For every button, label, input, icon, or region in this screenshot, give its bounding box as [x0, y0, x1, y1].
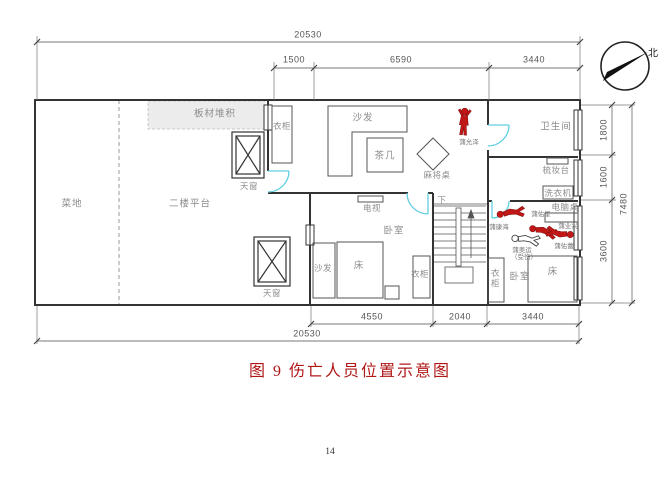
- dim-bot-seg-3440: 3440: [522, 313, 544, 322]
- dim-bottom-total: 20530: [293, 330, 321, 339]
- label-dressing-table: 梳妆台: [542, 166, 569, 175]
- dim-right-seg-1600: 1600: [600, 166, 609, 188]
- tv-outline: [358, 196, 383, 202]
- label-board-stack: 板材堆积: [194, 109, 236, 119]
- door-bathroom: [488, 125, 509, 146]
- label-sofa-living: 沙发: [352, 113, 373, 123]
- label-skylight-bottom: 天窗: [263, 289, 281, 298]
- page-number: 14: [325, 447, 335, 457]
- casualty-name-4: 蒲业兴: [558, 224, 578, 231]
- casualty-figure-injured: [511, 233, 540, 246]
- skylight-bottom-symbol: [254, 237, 290, 286]
- north-compass: [601, 42, 649, 90]
- dim-bot-seg-4550: 4550: [361, 313, 383, 322]
- skylight-top-symbol: [232, 132, 264, 178]
- door-bedroom-mid: [407, 193, 428, 214]
- casualty-status-6: （受伤）: [511, 255, 537, 262]
- staircase: [434, 206, 486, 283]
- dim-right-total: 7480: [620, 193, 629, 215]
- dim-right-seg-1800: 1800: [600, 119, 609, 141]
- label-bed-right: 床: [548, 267, 559, 277]
- casualty-figure-lying-1: [496, 206, 525, 220]
- compass-needle: [603, 52, 648, 81]
- dim-top-seg-3440: 3440: [523, 56, 545, 65]
- casualty-name-5: 蒲佑蕾: [554, 244, 574, 251]
- label-bathroom: 卫生间: [540, 122, 572, 132]
- mahjong-table-outline: [417, 138, 449, 170]
- floor-plan-drawing: [0, 0, 659, 478]
- label-washing-machine: 洗衣机: [544, 189, 571, 198]
- label-wardrobe-right: 衣柜: [491, 269, 500, 290]
- stair-landing: [445, 267, 473, 283]
- casualty-name-3: 蒲康海: [489, 225, 509, 232]
- dim-right-seg-3600: 3600: [600, 240, 609, 262]
- dim-top-total: 20530: [294, 31, 322, 40]
- label-platform: 二楼平台: [169, 199, 211, 209]
- label-mahjong-table: 麻将桌: [423, 171, 450, 180]
- figure-page: 20530 1500 6590 3440 4550 2040 3440 2053…: [0, 0, 659, 478]
- bed-right-outline: [528, 256, 577, 302]
- label-vegetable-plot: 菜地: [61, 199, 82, 209]
- dim-top-seg-6590: 6590: [390, 56, 412, 65]
- figure-caption: 图 9 伤亡人员位置示意图: [249, 357, 451, 381]
- label-stairs-down: 下: [437, 196, 446, 205]
- casualty-figure-standing: [457, 108, 472, 136]
- casualty-name-1: 蒲允泽: [459, 140, 479, 147]
- casualty-name-2: 蒲佑星: [531, 212, 551, 219]
- dim-top-seg-1500: 1500: [283, 56, 305, 65]
- wardrobe-living-outline: [272, 106, 292, 163]
- label-bedroom-right: 卧室: [509, 272, 530, 282]
- dressing-table-outline: [547, 158, 568, 164]
- nightstand-outline: [385, 286, 399, 299]
- label-bed-mid: 床: [354, 261, 365, 271]
- north-label: 北: [648, 45, 658, 60]
- door-platform-living: [268, 171, 289, 192]
- label-bedroom-mid: 卧室: [383, 226, 404, 236]
- label-computer-desk: 电脑桌: [551, 203, 578, 212]
- stairs-up-arrow: [468, 210, 474, 218]
- label-tea-table: 茶几: [374, 151, 395, 161]
- dim-bot-seg-2040: 2040: [449, 313, 471, 322]
- label-wardrobe-living: 衣柜: [273, 122, 291, 131]
- label-wardrobe-mid: 衣柜: [411, 270, 429, 279]
- label-tv: 电视: [363, 204, 381, 213]
- label-skylight-top: 天窗: [240, 182, 258, 191]
- label-sofa-mid: 沙发: [314, 264, 332, 273]
